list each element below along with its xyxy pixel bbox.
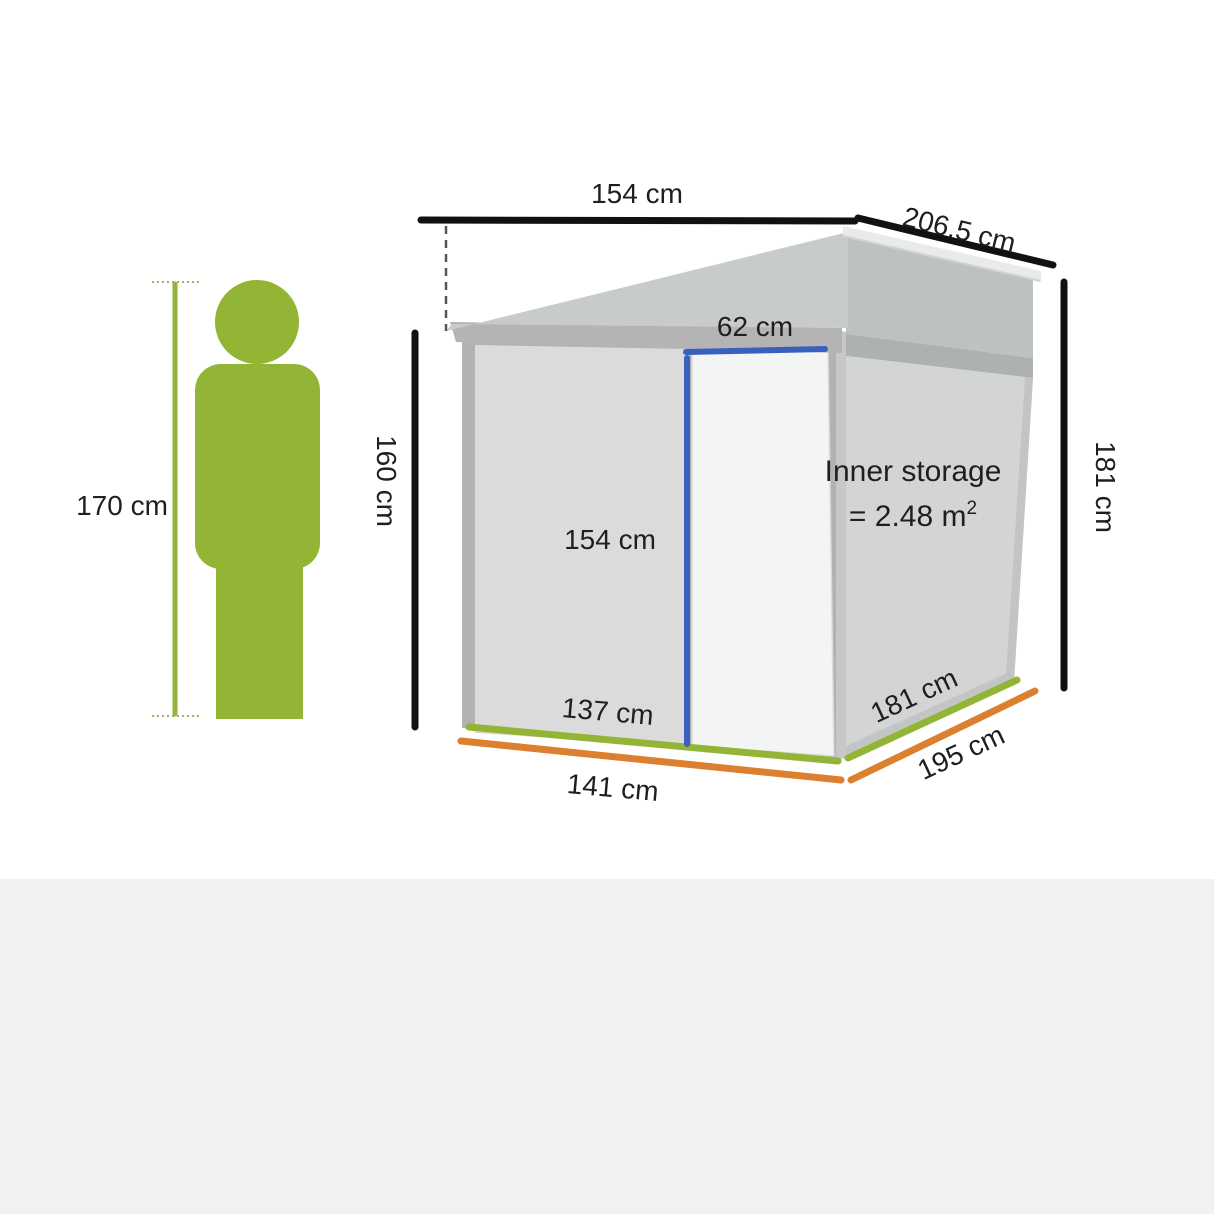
person-legs [216, 560, 303, 719]
shed-diagram-scene: 170 cm [0, 0, 1214, 879]
door-height-label: 154 cm [564, 524, 656, 555]
overall-height-label: 181 cm [1090, 441, 1121, 533]
inner-storage-value: = 2.48 m [849, 500, 967, 533]
inner-storage-text-line2: = 2.48 m2 [849, 498, 977, 533]
person-silhouette: 170 cm [76, 280, 320, 719]
inner-storage-superscript: 2 [967, 498, 978, 519]
dimension-diagram: 170 cm [0, 0, 1214, 1214]
door-width-label: 62 cm [717, 311, 793, 342]
wall-height-label: 160 cm [371, 435, 402, 527]
inner-storage-text-line1: Inner storage [825, 455, 1002, 488]
overall-width-line [421, 220, 855, 221]
overall-width-label: 154 cm [591, 178, 683, 209]
summary-band: Floor space = 2.81 m2 Overall dimension … [0, 879, 1214, 1214]
person-body [195, 364, 320, 569]
corner-post [836, 330, 846, 760]
floor-width-label: 141 cm [566, 768, 660, 807]
person-head [215, 280, 299, 364]
door-width-line [686, 349, 825, 352]
person-height-label: 170 cm [76, 490, 168, 521]
door-panel [692, 349, 834, 756]
